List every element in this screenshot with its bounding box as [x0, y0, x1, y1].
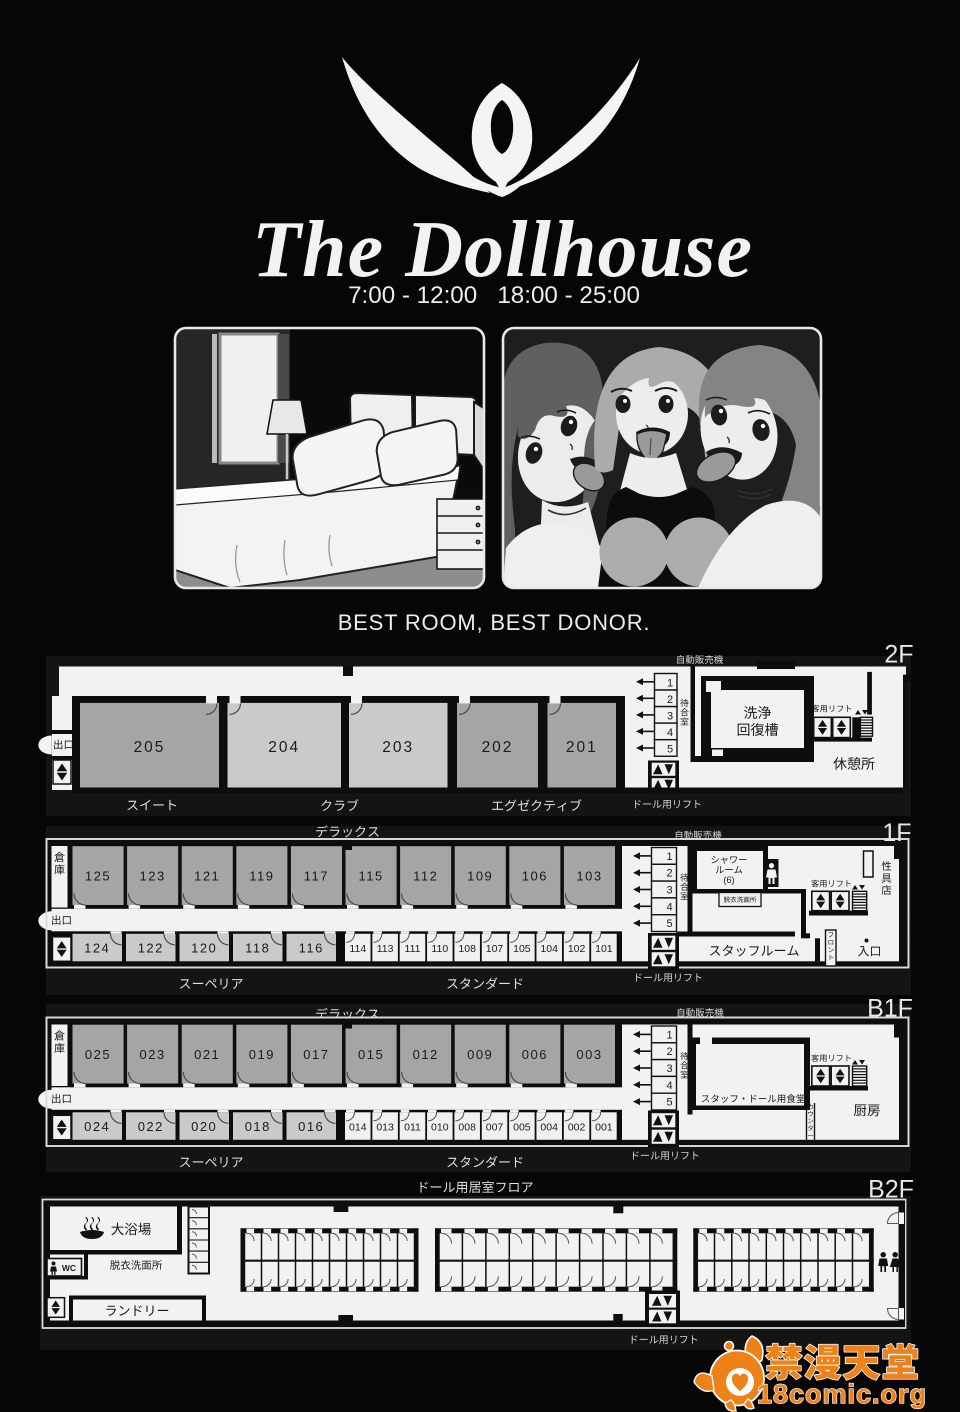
svg-text:110: 110: [431, 943, 448, 955]
svg-text:105: 105: [513, 943, 531, 955]
svg-text:106: 106: [522, 869, 548, 884]
svg-text:008: 008: [458, 1122, 476, 1134]
svg-text:5: 5: [666, 918, 672, 930]
svg-text:4: 4: [666, 1080, 672, 1092]
svg-text:016: 016: [298, 1119, 324, 1134]
svg-text:The Dollhouse: The Dollhouse: [252, 206, 752, 294]
svg-text:2: 2: [666, 868, 672, 880]
svg-text:2: 2: [667, 694, 673, 706]
svg-text:117: 117: [304, 869, 329, 884]
svg-text:021: 021: [194, 1047, 220, 1062]
svg-text:103: 103: [576, 869, 602, 884]
svg-text:108: 108: [458, 943, 476, 955]
svg-text:006: 006: [522, 1047, 548, 1062]
svg-text:BEST ROOM, BEST DONOR.: BEST ROOM, BEST DONOR.: [338, 610, 651, 635]
svg-text:017: 017: [303, 1047, 329, 1062]
svg-text:012: 012: [413, 1047, 439, 1062]
svg-text:(6): (6): [723, 875, 734, 885]
svg-text:3: 3: [666, 885, 672, 897]
svg-text:123: 123: [139, 869, 165, 884]
svg-text:116: 116: [299, 941, 324, 956]
svg-text:204: 204: [268, 739, 300, 756]
svg-text:107: 107: [486, 943, 504, 955]
svg-text:1F: 1F: [882, 819, 911, 847]
svg-text:5: 5: [666, 1097, 672, 1109]
svg-text:020: 020: [191, 1119, 217, 1134]
svg-text:018: 018: [245, 1119, 271, 1134]
svg-text:1: 1: [667, 678, 673, 690]
svg-text:1: 1: [666, 1029, 672, 1041]
svg-text:022: 022: [138, 1119, 164, 1134]
svg-text:019: 019: [249, 1047, 275, 1062]
svg-text:1: 1: [666, 851, 672, 863]
svg-text:122: 122: [138, 941, 164, 956]
svg-text:111: 111: [405, 943, 421, 955]
svg-text:023: 023: [139, 1047, 165, 1062]
svg-text:203: 203: [382, 739, 414, 756]
svg-text:101: 101: [595, 943, 613, 955]
svg-text:010: 010: [431, 1122, 449, 1134]
svg-text:003: 003: [576, 1047, 602, 1062]
svg-text:120: 120: [191, 941, 217, 956]
svg-text:7:00 - 12:00 18:00 - 25:00: 7:00 - 12:00 18:00 - 25:00: [348, 282, 640, 309]
svg-text:002: 002: [568, 1122, 586, 1134]
svg-text:112: 112: [413, 869, 438, 884]
svg-text:118: 118: [245, 941, 270, 956]
svg-text:124: 124: [84, 941, 110, 956]
svg-text:125: 125: [85, 869, 111, 884]
svg-text:004: 004: [540, 1122, 558, 1134]
svg-text:114: 114: [349, 943, 366, 955]
svg-text:2F: 2F: [884, 641, 913, 669]
svg-text:011: 011: [404, 1122, 421, 1134]
svg-text:5: 5: [667, 744, 673, 756]
svg-text:201: 201: [566, 739, 598, 756]
svg-text:009: 009: [467, 1047, 493, 1062]
svg-text:015: 015: [358, 1047, 384, 1062]
svg-text:115: 115: [358, 869, 383, 884]
svg-text:205: 205: [134, 739, 166, 756]
svg-text:102: 102: [568, 943, 586, 955]
svg-text:B1F: B1F: [867, 995, 913, 1023]
svg-text:121: 121: [194, 869, 220, 884]
svg-text:007: 007: [486, 1122, 504, 1134]
svg-text:005: 005: [513, 1122, 531, 1134]
svg-text:024: 024: [84, 1119, 110, 1134]
svg-text:202: 202: [482, 739, 514, 756]
svg-text:WC: WC: [62, 1263, 76, 1273]
svg-text:025: 025: [85, 1047, 111, 1062]
svg-text:001: 001: [595, 1122, 613, 1134]
svg-text:119: 119: [249, 869, 274, 884]
svg-text:3: 3: [666, 1063, 672, 1075]
svg-text:2: 2: [666, 1046, 672, 1058]
svg-text:109: 109: [467, 869, 493, 884]
svg-text:B2F: B2F: [868, 1176, 914, 1204]
svg-text:113: 113: [377, 943, 394, 955]
svg-text:013: 013: [376, 1122, 394, 1134]
svg-text:4: 4: [666, 901, 672, 913]
svg-text:104: 104: [540, 943, 558, 955]
svg-text:3: 3: [667, 711, 673, 723]
svg-text:014: 014: [349, 1122, 367, 1134]
svg-text:4: 4: [667, 727, 673, 739]
svg-text:18comic.org: 18comic.org: [757, 1379, 927, 1409]
